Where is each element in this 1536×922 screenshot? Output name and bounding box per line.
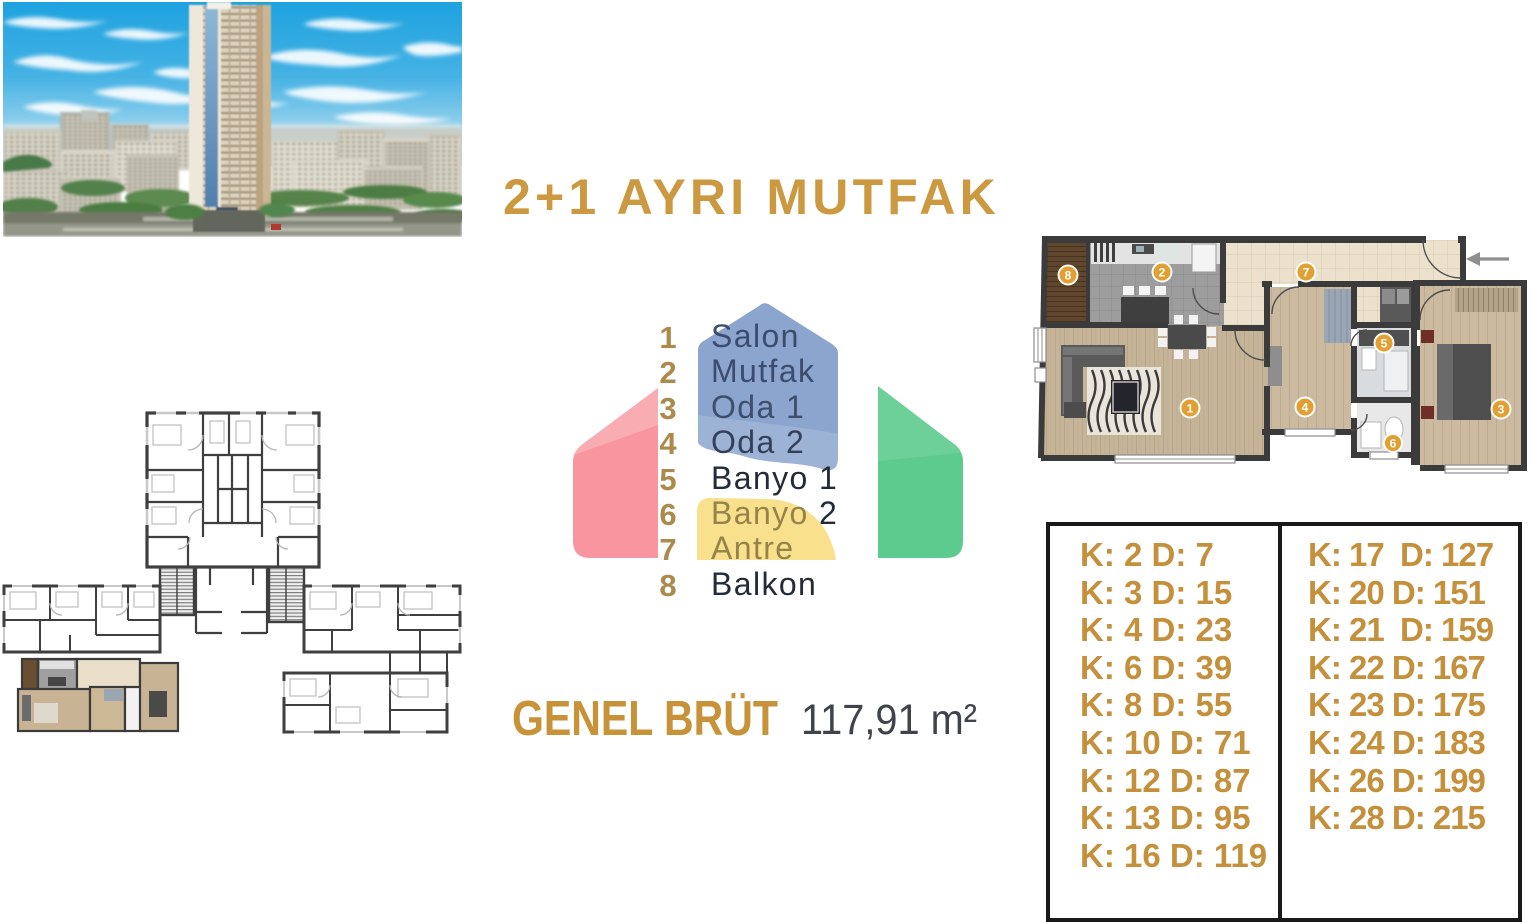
svg-text:3: 3 bbox=[1498, 403, 1505, 417]
svg-text:6: 6 bbox=[1390, 437, 1397, 451]
svg-text:4: 4 bbox=[1302, 401, 1309, 415]
svg-text:2: 2 bbox=[1159, 266, 1166, 280]
svg-text:8: 8 bbox=[1065, 269, 1072, 283]
svg-text:5: 5 bbox=[1381, 337, 1388, 351]
svg-text:7: 7 bbox=[1303, 266, 1310, 280]
svg-text:1: 1 bbox=[1187, 402, 1194, 416]
